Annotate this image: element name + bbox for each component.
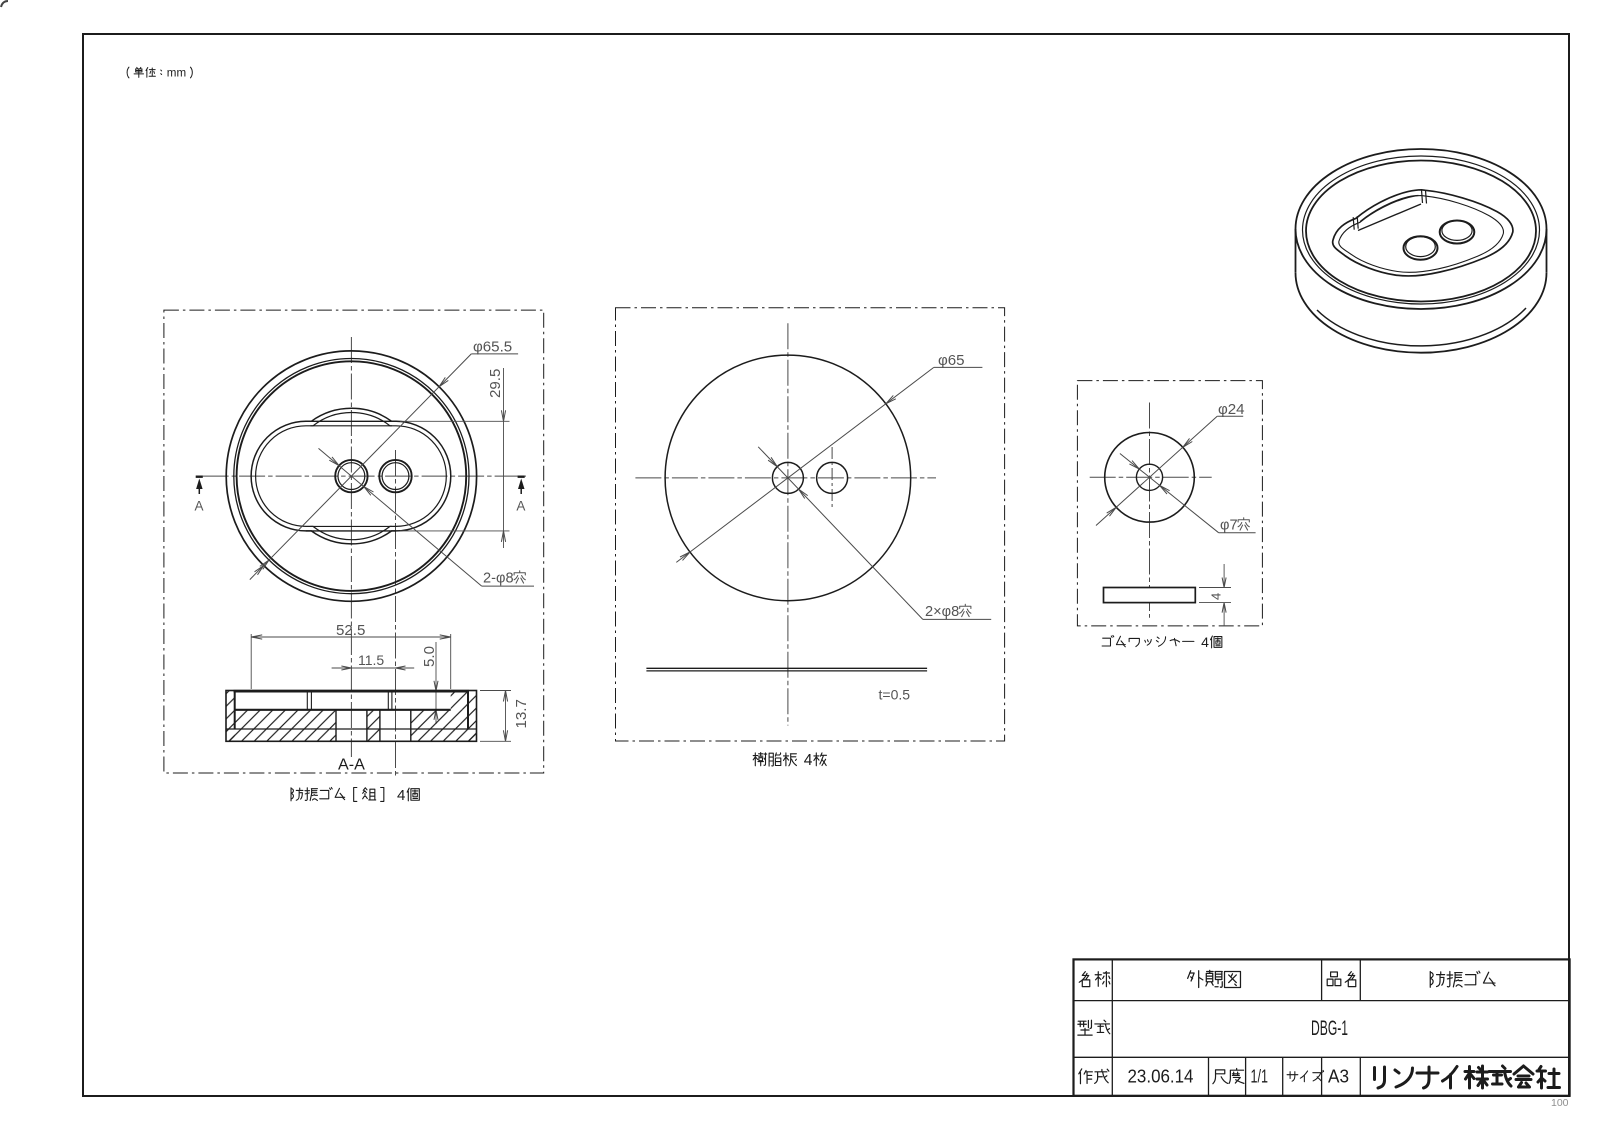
svg-text:100: 100 (1551, 1097, 1569, 1109)
svg-text:φ7: φ7 (1220, 518, 1238, 534)
svg-text:5.0: 5.0 (421, 646, 438, 667)
svg-text:29.5: 29.5 (487, 369, 504, 398)
svg-text:4: 4 (1201, 634, 1209, 650)
svg-text:4: 4 (397, 787, 405, 804)
svg-text:mm: mm (167, 67, 186, 80)
svg-text:A-A: A-A (338, 755, 365, 773)
svg-text:52.5: 52.5 (336, 622, 365, 639)
svg-text:φ24: φ24 (1218, 401, 1245, 418)
svg-text:2-φ8: 2-φ8 (483, 571, 514, 587)
svg-text:4: 4 (1209, 593, 1224, 600)
svg-text:11.5: 11.5 (358, 652, 384, 668)
svg-text:φ65.5: φ65.5 (473, 338, 512, 355)
svg-text:1/1: 1/1 (1251, 1067, 1269, 1087)
svg-text:t=0.5: t=0.5 (879, 687, 911, 703)
svg-text:4: 4 (804, 752, 813, 769)
svg-text:DBG-1: DBG-1 (1311, 1017, 1348, 1040)
svg-text:A: A (195, 498, 204, 513)
svg-text:φ65: φ65 (938, 352, 965, 369)
svg-text:A: A (516, 498, 525, 513)
svg-text:13.7: 13.7 (513, 699, 530, 728)
svg-text:23.06.14: 23.06.14 (1128, 1067, 1194, 1087)
svg-text:2×φ8: 2×φ8 (925, 604, 959, 620)
svg-text:A3: A3 (1328, 1067, 1349, 1087)
